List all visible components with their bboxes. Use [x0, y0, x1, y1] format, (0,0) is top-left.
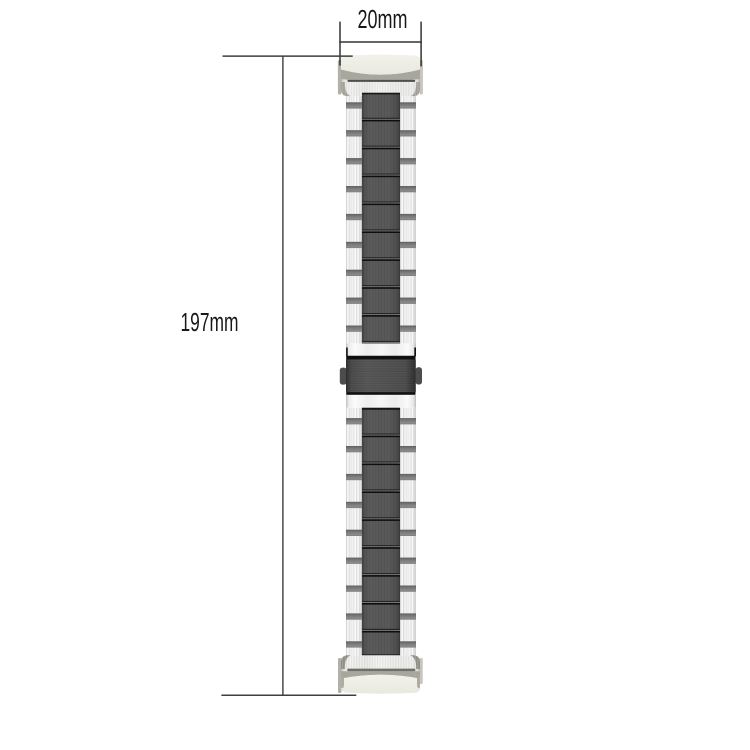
svg-text:20mm: 20mm — [358, 6, 408, 34]
svg-text:197mm: 197mm — [181, 309, 239, 337]
